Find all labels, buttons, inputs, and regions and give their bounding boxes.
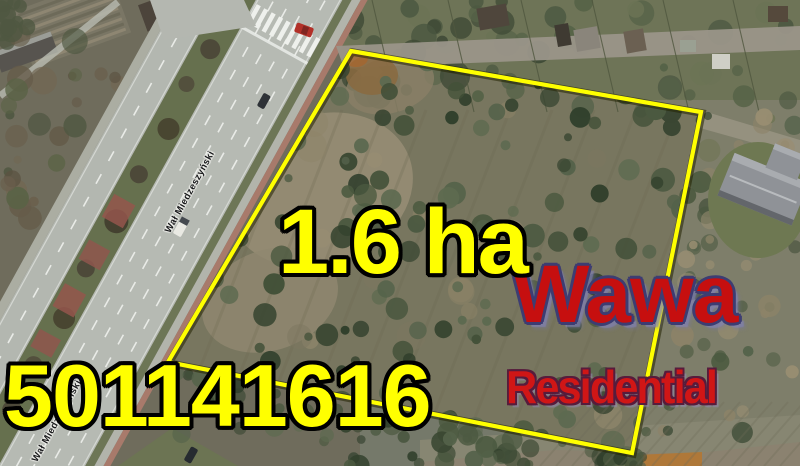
brand-subtitle: Residential — [506, 364, 716, 410]
brand-name: Wawa — [512, 254, 737, 336]
aerial-listing-image: Wał Miedzeszyński Wał Miedzeszyński Wawa… — [0, 0, 800, 466]
contact-phone-number: 501141616 — [4, 352, 431, 440]
plot-area-label: 1.6 ha — [278, 196, 527, 288]
